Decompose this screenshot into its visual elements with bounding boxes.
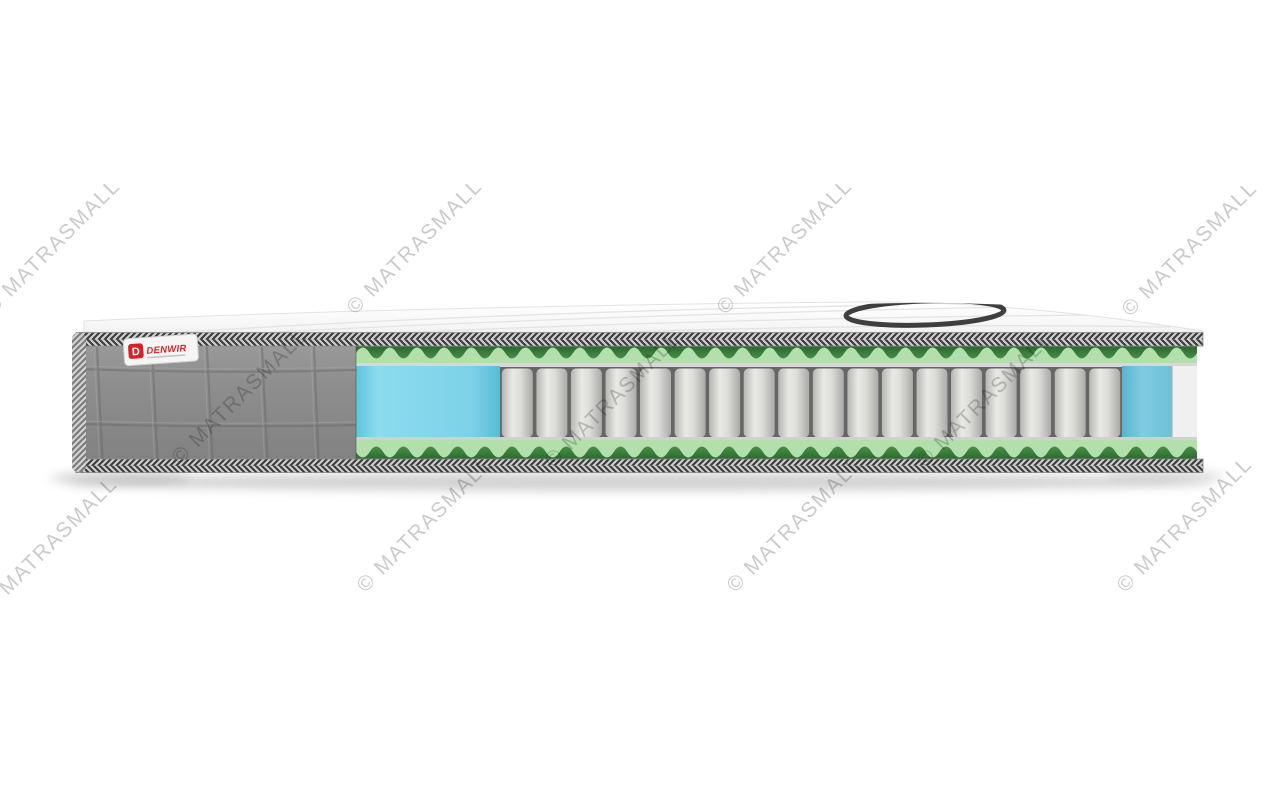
pocket-spring — [813, 369, 844, 438]
brand-logo-letter: D — [132, 346, 141, 359]
pocket-spring — [502, 369, 533, 438]
pocket-spring — [778, 369, 809, 438]
pocket-spring — [1055, 369, 1086, 438]
edge-piping-left — [72, 333, 86, 472]
pocket-spring — [536, 369, 567, 438]
pocket-spring — [1089, 369, 1120, 438]
foam-block-left — [356, 366, 500, 440]
pocket-spring — [709, 369, 740, 438]
mattress-cutaway-image: D DENWIR — [0, 0, 1280, 800]
product-photo: D DENWIR © MATRASMALL© MATRASMALL© MATRA… — [0, 0, 1280, 800]
cut-edge-right — [1172, 366, 1197, 440]
drop-shadow — [50, 470, 1225, 491]
pocket-spring — [847, 369, 878, 438]
pocket-spring — [882, 369, 913, 438]
pocket-spring — [744, 369, 775, 438]
foam-block-right — [1122, 366, 1172, 440]
brand-label: D DENWIR — [123, 334, 199, 366]
cross-section — [356, 334, 1197, 472]
edge-tape-bottom — [76, 459, 1203, 473]
pocket-spring — [675, 369, 706, 438]
pocket-spring — [1020, 369, 1051, 438]
